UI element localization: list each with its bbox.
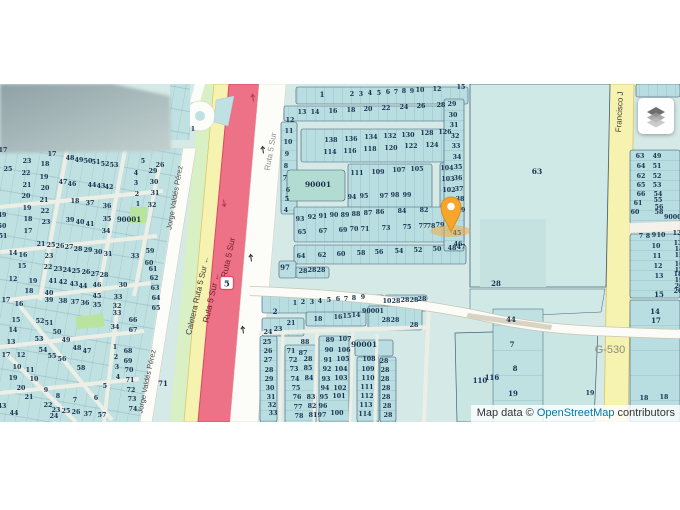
- svg-text:91: 91: [319, 213, 328, 220]
- svg-text:8: 8: [513, 364, 518, 373]
- svg-text:31: 31: [151, 190, 160, 197]
- svg-text:21: 21: [23, 182, 32, 189]
- svg-text:28: 28: [381, 376, 390, 383]
- svg-text:102: 102: [442, 187, 455, 194]
- svg-text:28: 28: [380, 358, 389, 365]
- svg-text:81: 81: [309, 412, 318, 419]
- svg-text:114: 114: [358, 411, 372, 418]
- svg-text:31: 31: [450, 122, 459, 129]
- svg-text:113: 113: [359, 402, 372, 409]
- svg-text:9: 9: [361, 294, 365, 301]
- svg-text:31: 31: [267, 394, 276, 401]
- svg-text:1: 1: [320, 90, 325, 99]
- svg-text:51: 51: [0, 233, 7, 240]
- svg-text:6: 6: [336, 296, 341, 303]
- svg-text:105: 105: [336, 356, 349, 363]
- svg-text:20: 20: [41, 185, 50, 192]
- svg-text:33: 33: [452, 143, 461, 150]
- svg-text:23: 23: [42, 219, 51, 226]
- svg-text:34: 34: [453, 154, 462, 161]
- svg-text:28: 28: [382, 317, 391, 324]
- svg-text:44: 44: [10, 410, 19, 417]
- svg-text:37: 37: [455, 186, 464, 193]
- svg-text:132: 132: [383, 133, 396, 140]
- svg-text:21: 21: [37, 241, 46, 248]
- svg-text:28: 28: [401, 297, 410, 304]
- svg-text:3: 3: [115, 364, 119, 371]
- svg-text:8: 8: [352, 295, 357, 302]
- svg-text:52: 52: [653, 173, 662, 180]
- svg-text:14: 14: [311, 109, 320, 116]
- svg-text:28: 28: [100, 272, 109, 279]
- svg-text:112: 112: [360, 393, 373, 400]
- svg-text:8: 8: [284, 163, 289, 170]
- svg-text:33: 33: [113, 310, 122, 317]
- svg-text:70: 70: [125, 367, 134, 374]
- svg-text:55: 55: [654, 197, 663, 204]
- svg-text:95: 95: [360, 193, 369, 200]
- svg-text:48: 48: [73, 345, 82, 352]
- svg-text:28: 28: [304, 356, 313, 363]
- svg-text:20: 20: [17, 385, 26, 392]
- svg-text:19: 19: [29, 278, 38, 285]
- svg-text:136: 136: [344, 136, 358, 143]
- svg-text:12: 12: [9, 276, 18, 283]
- svg-text:51: 51: [653, 163, 662, 170]
- svg-text:3: 3: [134, 180, 138, 187]
- svg-text:23: 23: [23, 158, 32, 165]
- svg-text:60: 60: [337, 251, 346, 258]
- svg-text:7: 7: [394, 89, 398, 96]
- svg-text:107: 107: [392, 167, 405, 174]
- svg-text:75: 75: [292, 385, 301, 392]
- svg-text:15: 15: [654, 290, 664, 299]
- svg-text:116: 116: [343, 148, 357, 155]
- svg-text:15: 15: [12, 317, 21, 324]
- svg-text:12: 12: [673, 230, 680, 237]
- svg-text:72: 72: [127, 387, 136, 394]
- osm-link[interactable]: OpenStreetMap: [537, 407, 615, 419]
- svg-text:111: 111: [360, 384, 373, 391]
- svg-text:7: 7: [73, 397, 77, 404]
- svg-text:40: 40: [76, 219, 85, 226]
- svg-text:47: 47: [457, 244, 466, 251]
- svg-text:68: 68: [124, 348, 133, 355]
- svg-text:90: 90: [325, 347, 334, 354]
- svg-text:15: 15: [457, 84, 466, 91]
- map-viewport[interactable]: 1717484950515253526231825221921202021192…: [0, 84, 680, 422]
- svg-text:35: 35: [103, 216, 112, 223]
- svg-text:30: 30: [119, 282, 128, 289]
- svg-text:8: 8: [646, 233, 651, 240]
- svg-text:28: 28: [392, 298, 401, 305]
- svg-text:37: 37: [86, 200, 95, 207]
- svg-text:59: 59: [146, 248, 155, 255]
- svg-text:26: 26: [82, 269, 91, 276]
- svg-text:29: 29: [84, 247, 93, 254]
- svg-text:37: 37: [71, 299, 80, 306]
- svg-text:71: 71: [126, 377, 135, 384]
- svg-text:73: 73: [128, 396, 137, 403]
- svg-text:17: 17: [651, 316, 661, 325]
- svg-text:90001: 90001: [351, 340, 377, 349]
- svg-text:20: 20: [364, 106, 373, 113]
- svg-text:22: 22: [41, 208, 50, 215]
- layers-button[interactable]: [638, 98, 674, 134]
- svg-text:28: 28: [299, 268, 308, 275]
- svg-text:97: 97: [318, 412, 327, 419]
- svg-text:35: 35: [93, 302, 102, 309]
- svg-text:25: 25: [62, 408, 71, 415]
- marker-pin-dot: [447, 203, 455, 211]
- attribution-suffix: contributors: [614, 407, 675, 419]
- svg-text:97: 97: [380, 193, 389, 200]
- svg-text:108: 108: [362, 356, 376, 363]
- svg-text:18: 18: [660, 394, 669, 401]
- svg-text:G-530: G-530: [595, 344, 626, 356]
- svg-text:36: 36: [103, 203, 112, 210]
- svg-text:46: 46: [68, 181, 77, 188]
- svg-text:16: 16: [329, 108, 338, 115]
- svg-text:23: 23: [45, 253, 54, 260]
- svg-text:66: 66: [637, 191, 646, 198]
- svg-text:21: 21: [40, 197, 49, 204]
- svg-text:61: 61: [634, 200, 643, 207]
- svg-text:18: 18: [25, 288, 34, 295]
- svg-text:34: 34: [102, 228, 111, 235]
- svg-text:24: 24: [264, 329, 273, 336]
- svg-text:4: 4: [134, 170, 139, 177]
- svg-text:36: 36: [454, 175, 463, 182]
- svg-text:10: 10: [416, 87, 425, 94]
- svg-text:43: 43: [0, 403, 6, 410]
- svg-text:53: 53: [653, 182, 662, 189]
- svg-text:49: 49: [0, 212, 6, 219]
- svg-text:62: 62: [150, 275, 159, 282]
- svg-text:138: 138: [324, 137, 338, 144]
- svg-text:19: 19: [508, 389, 518, 398]
- svg-text:33: 33: [131, 253, 140, 260]
- svg-text:95: 95: [320, 394, 329, 401]
- svg-text:28: 28: [308, 267, 317, 274]
- svg-text:29: 29: [448, 101, 457, 108]
- svg-text:28: 28: [317, 267, 326, 274]
- svg-text:104: 104: [440, 165, 454, 172]
- svg-text:34: 34: [111, 324, 120, 331]
- svg-text:1: 1: [293, 300, 297, 307]
- svg-text:32: 32: [451, 133, 460, 140]
- svg-text:16: 16: [15, 301, 24, 308]
- svg-text:101: 101: [332, 393, 345, 400]
- svg-text:54: 54: [395, 248, 404, 255]
- svg-text:27: 27: [91, 271, 100, 278]
- svg-text:44: 44: [88, 182, 97, 189]
- svg-text:74: 74: [291, 376, 300, 383]
- svg-text:69: 69: [339, 227, 348, 234]
- svg-text:42: 42: [59, 279, 68, 286]
- svg-text:65: 65: [298, 229, 307, 236]
- svg-text:92: 92: [323, 366, 332, 373]
- svg-text:23: 23: [54, 266, 63, 273]
- svg-text:51: 51: [92, 159, 101, 166]
- svg-text:58: 58: [77, 365, 86, 372]
- svg-text:6: 6: [94, 395, 99, 402]
- svg-text:18: 18: [314, 316, 323, 323]
- svg-text:48: 48: [66, 155, 75, 162]
- svg-text:94: 94: [348, 194, 357, 201]
- svg-text:105: 105: [410, 166, 423, 173]
- svg-text:61: 61: [149, 266, 158, 273]
- svg-text:2: 2: [350, 91, 354, 98]
- svg-text:90001: 90001: [664, 214, 680, 221]
- svg-text:2: 2: [301, 299, 305, 306]
- svg-text:15: 15: [18, 263, 27, 270]
- svg-text:16: 16: [19, 252, 28, 259]
- svg-text:90001: 90001: [117, 215, 141, 224]
- svg-text:9: 9: [285, 151, 289, 158]
- svg-text:103: 103: [334, 375, 347, 382]
- svg-text:11: 11: [26, 367, 35, 374]
- svg-text:28: 28: [382, 394, 391, 401]
- svg-text:26: 26: [417, 103, 426, 110]
- map-canvas[interactable]: 1717484950515253526231825221921202021192…: [0, 84, 680, 422]
- svg-text:5: 5: [103, 383, 107, 390]
- svg-text:98: 98: [391, 192, 400, 199]
- svg-text:116: 116: [485, 373, 500, 382]
- svg-text:31: 31: [104, 251, 113, 258]
- svg-text:12: 12: [17, 352, 26, 359]
- svg-text:67: 67: [129, 327, 138, 334]
- svg-text:18: 18: [71, 198, 80, 205]
- screenshot-page: { "page": {"background": "#ffffff"}, "ma…: [0, 0, 680, 510]
- svg-text:1: 1: [136, 201, 140, 208]
- svg-text:18: 18: [347, 107, 356, 114]
- svg-text:6: 6: [286, 187, 291, 194]
- svg-text:40: 40: [45, 290, 54, 297]
- svg-text:53: 53: [110, 162, 119, 169]
- svg-text:66: 66: [129, 317, 138, 324]
- svg-text:52: 52: [36, 318, 45, 325]
- svg-text:11: 11: [653, 253, 662, 260]
- svg-text:6: 6: [386, 89, 391, 96]
- svg-text:62: 62: [318, 252, 327, 259]
- svg-text:17: 17: [2, 352, 11, 359]
- svg-text:64: 64: [152, 295, 161, 302]
- svg-text:20: 20: [674, 288, 680, 295]
- svg-text:45: 45: [93, 293, 102, 300]
- svg-text:106: 106: [337, 347, 351, 354]
- svg-text:13: 13: [655, 273, 664, 280]
- svg-text:33: 33: [269, 410, 278, 417]
- svg-text:53: 53: [35, 336, 44, 343]
- svg-text:50: 50: [53, 329, 62, 336]
- svg-text:109: 109: [361, 366, 374, 373]
- svg-text:65: 65: [152, 305, 161, 312]
- svg-text:71: 71: [361, 226, 370, 233]
- svg-text:90001: 90001: [362, 308, 384, 315]
- svg-text:15: 15: [343, 313, 352, 320]
- svg-text:56: 56: [58, 356, 67, 363]
- svg-text:76: 76: [293, 394, 302, 401]
- svg-text:32: 32: [113, 303, 122, 310]
- svg-text:39: 39: [66, 217, 75, 224]
- svg-text:26: 26: [56, 243, 65, 250]
- svg-text:89: 89: [341, 212, 350, 219]
- svg-text:63: 63: [636, 153, 645, 160]
- svg-text:19: 19: [9, 375, 18, 382]
- svg-text:2: 2: [114, 354, 118, 361]
- svg-text:28: 28: [437, 102, 446, 109]
- svg-text:17: 17: [2, 297, 11, 304]
- svg-text:50: 50: [0, 223, 7, 230]
- svg-text:9: 9: [652, 232, 656, 239]
- svg-text:30: 30: [94, 249, 103, 256]
- svg-text:93: 93: [322, 376, 331, 383]
- svg-text:89: 89: [326, 337, 335, 344]
- svg-text:56: 56: [375, 249, 384, 256]
- svg-text:23: 23: [274, 326, 283, 333]
- svg-text:84: 84: [398, 208, 407, 215]
- svg-text:10: 10: [284, 139, 293, 146]
- svg-text:8: 8: [56, 393, 61, 400]
- svg-text:64: 64: [637, 163, 646, 170]
- svg-text:27: 27: [264, 357, 273, 364]
- svg-text:16: 16: [334, 314, 343, 321]
- svg-text:22: 22: [44, 264, 53, 271]
- svg-text:65: 65: [637, 182, 646, 189]
- svg-text:88: 88: [301, 339, 310, 346]
- svg-text:9: 9: [44, 387, 48, 394]
- svg-text:14: 14: [650, 307, 660, 316]
- svg-text:69: 69: [124, 358, 133, 365]
- svg-text:49: 49: [62, 337, 71, 344]
- svg-text:4: 4: [284, 207, 289, 214]
- svg-text:60: 60: [631, 209, 640, 216]
- svg-text:63: 63: [151, 285, 160, 292]
- svg-text:27: 27: [65, 244, 74, 251]
- svg-text:7: 7: [283, 175, 287, 182]
- svg-text:28: 28: [382, 385, 391, 392]
- svg-text:85: 85: [304, 365, 313, 372]
- svg-text:22: 22: [382, 105, 391, 112]
- svg-text:41: 41: [49, 278, 58, 285]
- svg-text:28: 28: [383, 403, 392, 410]
- svg-text:7: 7: [639, 233, 643, 240]
- svg-text:12: 12: [433, 86, 442, 93]
- svg-text:4: 4: [368, 90, 373, 97]
- svg-text:82: 82: [308, 403, 317, 410]
- svg-text:14: 14: [352, 312, 361, 319]
- svg-text:73: 73: [290, 366, 299, 373]
- svg-text:38: 38: [59, 298, 68, 305]
- svg-text:47: 47: [59, 179, 68, 186]
- svg-text:25: 25: [263, 339, 272, 346]
- svg-text:128: 128: [420, 130, 434, 137]
- svg-text:7: 7: [510, 340, 515, 349]
- svg-text:51: 51: [45, 320, 54, 327]
- svg-text:12: 12: [286, 117, 295, 124]
- svg-text:36: 36: [81, 300, 90, 307]
- svg-text:126: 126: [438, 129, 452, 136]
- svg-text:37: 37: [84, 411, 93, 418]
- svg-text:14: 14: [9, 250, 18, 257]
- svg-text:28: 28: [381, 367, 390, 374]
- svg-text:46: 46: [93, 282, 102, 289]
- svg-text:28: 28: [491, 279, 501, 288]
- svg-text:26: 26: [72, 409, 81, 416]
- svg-text:78: 78: [295, 413, 304, 420]
- svg-text:47: 47: [83, 348, 92, 355]
- svg-text:29: 29: [149, 168, 158, 175]
- svg-text:70: 70: [350, 226, 359, 233]
- svg-text:5: 5: [141, 158, 145, 165]
- svg-text:64: 64: [297, 253, 306, 260]
- svg-text:71: 71: [287, 348, 296, 355]
- svg-text:87: 87: [364, 210, 373, 217]
- svg-text:30: 30: [266, 385, 275, 392]
- svg-text:2: 2: [135, 191, 139, 198]
- svg-text:5: 5: [285, 196, 289, 203]
- svg-text:90: 90: [330, 212, 339, 219]
- svg-text:44: 44: [506, 315, 516, 324]
- svg-text:30: 30: [150, 179, 159, 186]
- svg-text:28: 28: [74, 246, 83, 253]
- svg-text:114: 114: [323, 149, 337, 156]
- svg-text:52: 52: [101, 161, 110, 168]
- svg-text:13: 13: [298, 109, 307, 116]
- svg-text:21: 21: [287, 320, 296, 327]
- svg-text:19: 19: [23, 205, 32, 212]
- svg-text:1: 1: [113, 344, 117, 351]
- svg-text:5: 5: [327, 297, 331, 304]
- svg-text:19: 19: [40, 174, 49, 181]
- svg-text:52: 52: [414, 247, 423, 254]
- svg-text:7: 7: [344, 296, 348, 303]
- svg-text:91: 91: [324, 357, 333, 364]
- svg-text:22: 22: [22, 170, 31, 177]
- svg-text:8: 8: [402, 88, 407, 95]
- svg-text:20: 20: [22, 193, 31, 200]
- svg-text:11: 11: [285, 128, 294, 135]
- svg-text:3: 3: [359, 91, 363, 98]
- svg-text:124: 124: [425, 142, 439, 149]
- svg-text:100: 100: [330, 410, 344, 417]
- svg-text:63: 63: [532, 167, 542, 176]
- svg-text:26: 26: [264, 348, 273, 355]
- svg-text:48: 48: [448, 245, 457, 252]
- svg-text:13: 13: [7, 339, 16, 346]
- svg-text:99: 99: [403, 192, 412, 199]
- svg-text:28: 28: [384, 412, 393, 419]
- svg-text:25: 25: [47, 242, 56, 249]
- svg-text:4: 4: [318, 298, 323, 305]
- svg-text:25: 25: [4, 166, 13, 173]
- attribution-prefix: Map data ©: [477, 407, 537, 419]
- svg-text:130: 130: [401, 132, 415, 139]
- layers-icon: [644, 104, 668, 128]
- svg-text:94: 94: [321, 385, 330, 392]
- svg-text:24: 24: [50, 413, 59, 420]
- svg-text:41: 41: [86, 221, 95, 228]
- svg-text:5: 5: [377, 90, 381, 97]
- svg-text:122: 122: [404, 143, 417, 150]
- svg-text:18: 18: [640, 395, 649, 402]
- svg-text:55: 55: [48, 353, 57, 360]
- svg-text:4: 4: [116, 374, 121, 381]
- svg-text:10: 10: [652, 243, 661, 250]
- svg-text:90001: 90001: [305, 180, 331, 189]
- svg-text:28: 28: [410, 322, 419, 329]
